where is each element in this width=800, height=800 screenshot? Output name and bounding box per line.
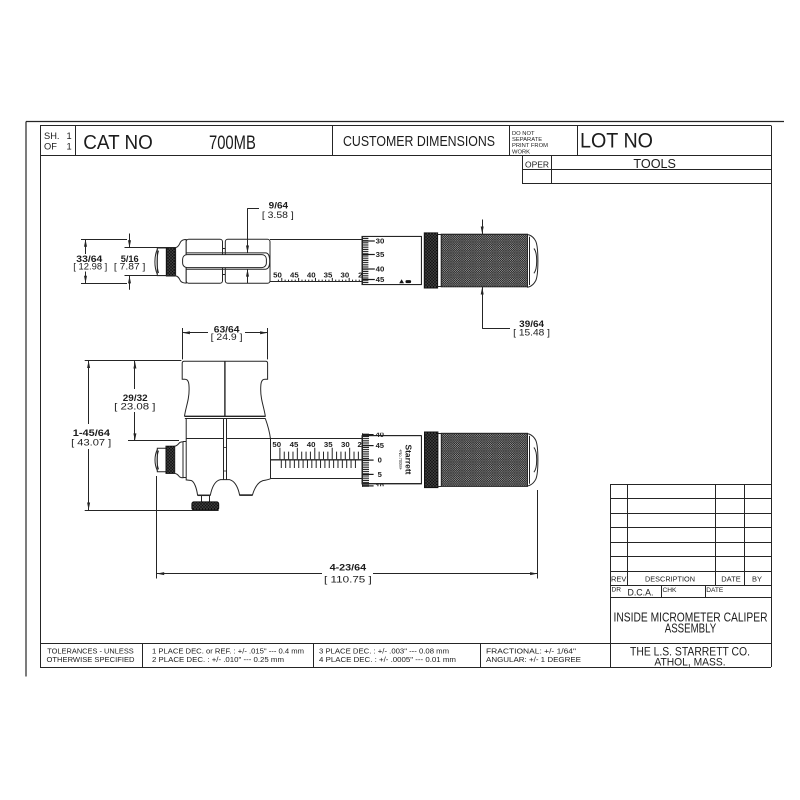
svg-text:[ 12.98 ]: [ 12.98 ]: [73, 262, 107, 272]
svg-text:40: 40: [307, 440, 316, 449]
svg-text:40: 40: [376, 265, 385, 274]
svg-text:[ 24.9 ]: [ 24.9 ]: [211, 332, 243, 342]
svg-text:Starrett: Starrett: [404, 445, 414, 475]
svg-text:50: 50: [273, 270, 282, 279]
svg-text:[ 43.07 ]: [ 43.07 ]: [71, 438, 111, 448]
svg-text:45: 45: [376, 275, 385, 284]
svg-text:OF: OF: [44, 141, 57, 151]
svg-text:CAT NO: CAT NO: [83, 132, 153, 154]
svg-text:ANGULAR: +/- 1 DEGREE: ANGULAR: +/- 1 DEGREE: [486, 655, 581, 664]
svg-text:SEPARATE: SEPARATE: [512, 137, 542, 143]
svg-text:DESCRIPTION: DESCRIPTION: [645, 574, 695, 583]
svg-text:WORK: WORK: [512, 149, 530, 155]
svg-text:DO NOT: DO NOT: [512, 131, 535, 137]
svg-text:BY: BY: [752, 574, 762, 583]
svg-text:2 PLACE DEC. : +/- .010" ---: 2 PLACE DEC. : +/- .010" --- 0.25 mm: [152, 655, 284, 664]
svg-text:30: 30: [376, 237, 385, 246]
svg-text:CHK: CHK: [663, 587, 678, 594]
svg-text:D.C.A.: D.C.A.: [628, 587, 654, 597]
svg-text:[ 7.87 ]: [ 7.87 ]: [114, 262, 146, 272]
svg-text:700MB: 700MB: [209, 132, 256, 154]
svg-text:30: 30: [341, 270, 350, 279]
svg-text:+No.700M+: +No.700M+: [398, 449, 403, 470]
svg-text:45: 45: [290, 270, 299, 279]
svg-text:45: 45: [376, 441, 385, 450]
svg-text:DR: DR: [612, 586, 622, 593]
svg-text:[ 110.75 ]: [ 110.75 ]: [324, 574, 372, 584]
svg-text:LOT NO: LOT NO: [580, 129, 653, 152]
svg-text:DATE: DATE: [706, 587, 724, 594]
svg-text:40: 40: [307, 270, 316, 279]
svg-text:ASSEMBLY: ASSEMBLY: [665, 621, 717, 636]
svg-text:[ 3.58 ]: [ 3.58 ]: [262, 210, 294, 220]
svg-text:0: 0: [378, 456, 382, 465]
svg-text:[ 23.08 ]: [ 23.08 ]: [114, 401, 155, 411]
svg-text:OTHERWISE SPECIFIED: OTHERWISE SPECIFIED: [47, 655, 135, 664]
svg-text:SH.: SH.: [44, 131, 60, 141]
svg-text:ATHOL, MASS.: ATHOL, MASS.: [654, 656, 725, 668]
svg-text:2: 2: [357, 440, 361, 449]
svg-text:REV: REV: [611, 574, 626, 583]
svg-text:4-23/64: 4-23/64: [330, 563, 367, 574]
svg-text:TOOLS: TOOLS: [633, 156, 676, 171]
svg-text:DATE: DATE: [721, 574, 740, 583]
svg-text:OPER: OPER: [525, 159, 549, 169]
svg-text:CUSTOMER DIMENSIONS: CUSTOMER DIMENSIONS: [343, 134, 495, 150]
svg-text:35: 35: [376, 250, 385, 259]
svg-text:[ 15.48 ]: [ 15.48 ]: [513, 327, 550, 337]
svg-text:PRINT FROM: PRINT FROM: [512, 143, 548, 149]
svg-text:4 PLACE DEC. : +/- .0005" ---: 4 PLACE DEC. : +/- .0005" --- 0.01 mm: [319, 655, 456, 664]
svg-text:30: 30: [341, 440, 350, 449]
svg-text:1: 1: [67, 141, 72, 151]
svg-text:1: 1: [67, 131, 72, 141]
svg-text:35: 35: [324, 270, 333, 279]
